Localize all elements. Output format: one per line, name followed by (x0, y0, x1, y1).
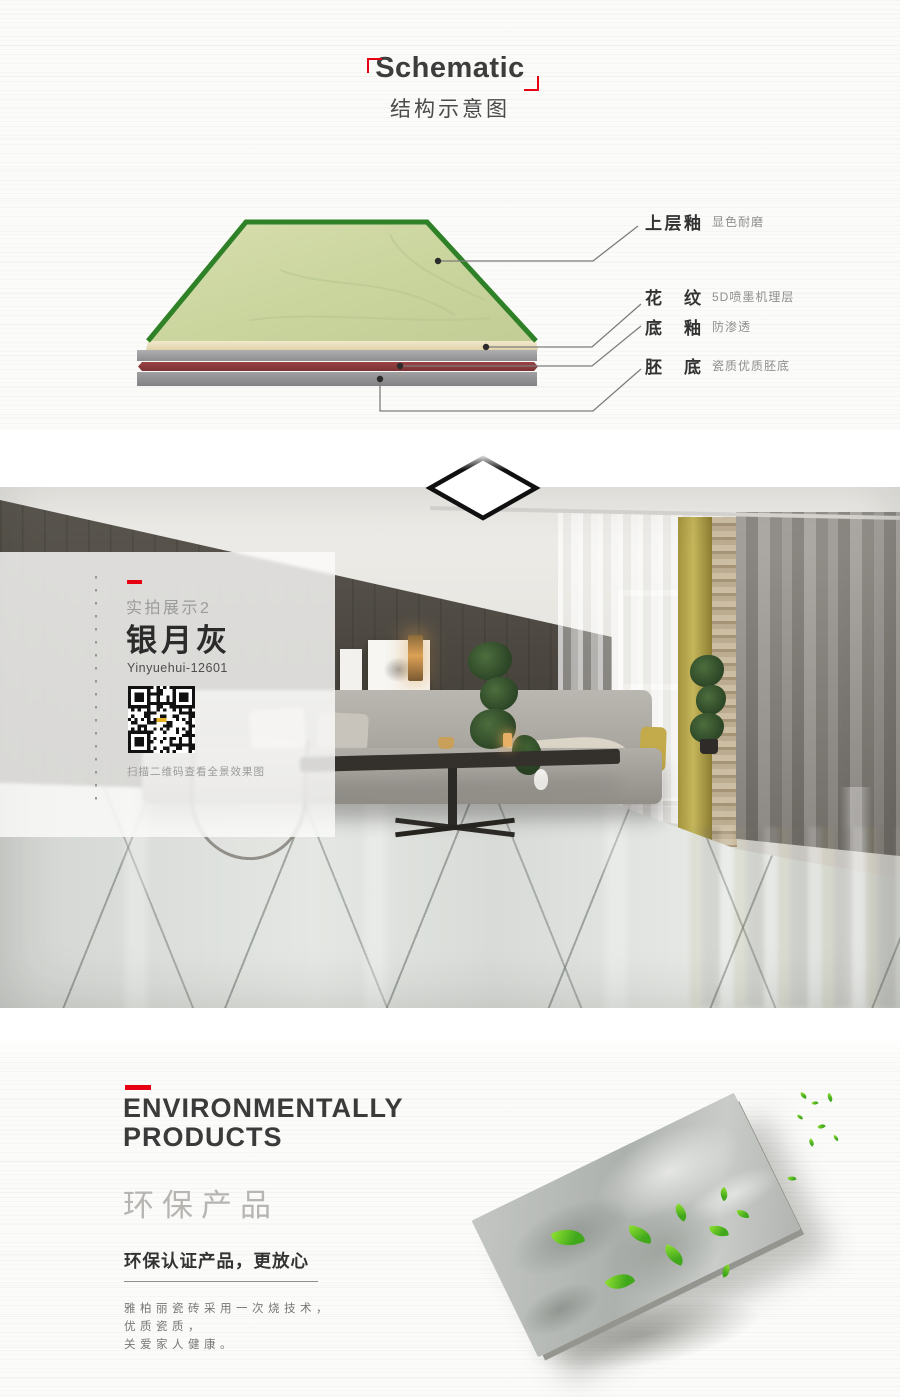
layer-desc: 瓷质优质胚底 (712, 357, 790, 374)
eco-body-line: 雅柏丽瓷砖采用一次烧技术， (124, 1300, 332, 1318)
product-info-card: 实拍展示2 银月灰 Yinyuehui-12601 扫描二维码查看全景效果图 (0, 552, 335, 837)
section-gap (0, 1008, 900, 1060)
layer-name: 底釉 (645, 314, 701, 339)
tile-layer-diagram (90, 200, 650, 430)
layer-label-bottom-glaze: 底釉 防渗透 (645, 315, 751, 337)
tile-top-surface (148, 222, 536, 341)
layer-name: 胚底 (645, 353, 701, 378)
tile-body-bottom-layer (137, 372, 537, 386)
schematic-title-zh: 结构示意图 (0, 93, 900, 123)
eco-body-line: 关爱家人健康。 (124, 1336, 332, 1354)
eco-title-line2: PRODUCTS (123, 1123, 404, 1152)
layer-label-pattern: 花纹 5D喷墨机理层 (645, 285, 794, 307)
leaf-icon (817, 1122, 826, 1130)
layer-label-body: 胚底 瓷质优质胚底 (645, 354, 790, 376)
product-code: Yinyuehui-12601 (127, 661, 228, 675)
leaf-icon (787, 1175, 796, 1182)
schematic-section-title: Schematic 结构示意图 (0, 52, 900, 123)
tile-pattern-layer (146, 341, 538, 350)
red-dash-icon (127, 580, 142, 584)
room-showcase-photo: 实拍展示2 银月灰 Yinyuehui-12601 扫描二维码查看全景效果图 (0, 487, 900, 1008)
tile-gray-layer (137, 350, 537, 361)
layer-name: 上层釉 (645, 209, 701, 234)
corner-bracket-icon (524, 76, 539, 91)
qr-caption: 扫描二维码查看全景效果图 (127, 764, 265, 779)
leaf-icon (826, 1093, 835, 1102)
layer-name: 花纹 (645, 284, 701, 309)
eco-title-zh: 环保产品 (123, 1180, 279, 1225)
eco-body-line: 优质瓷质， (124, 1318, 332, 1336)
leaf-icon (811, 1100, 818, 1106)
dotted-divider (95, 576, 97, 806)
product-name: 银月灰 (126, 615, 231, 660)
qr-code-icon (128, 686, 195, 753)
layer-desc: 防渗透 (712, 318, 751, 335)
diamond-fade (400, 448, 566, 470)
leaf-icon (799, 1092, 807, 1099)
eco-title-en: ENVIRONMENTALLY PRODUCTS (123, 1094, 404, 1152)
red-dash-icon (125, 1085, 151, 1090)
leaf-icon (832, 1135, 839, 1141)
eco-subtitle: 环保认证产品，更放心 (124, 1248, 309, 1273)
layer-desc: 5D喷墨机理层 (712, 288, 794, 305)
leaf-icon (807, 1138, 815, 1146)
layer-desc: 显色耐磨 (712, 213, 764, 230)
schematic-title-en: Schematic (0, 52, 900, 85)
corner-bracket-icon (367, 58, 382, 73)
eco-body-text: 雅柏丽瓷砖采用一次烧技术， 优质瓷质， 关爱家人健康。 (124, 1300, 332, 1354)
subtitle-underline (124, 1281, 318, 1282)
product-detail-page: Schematic 结构示意图 (0, 0, 900, 1397)
eco-title-line1: ENVIRONMENTALLY (123, 1094, 404, 1123)
layer-label-top-glaze: 上层釉 显色耐磨 (645, 210, 764, 232)
leaf-icon (797, 1115, 804, 1120)
